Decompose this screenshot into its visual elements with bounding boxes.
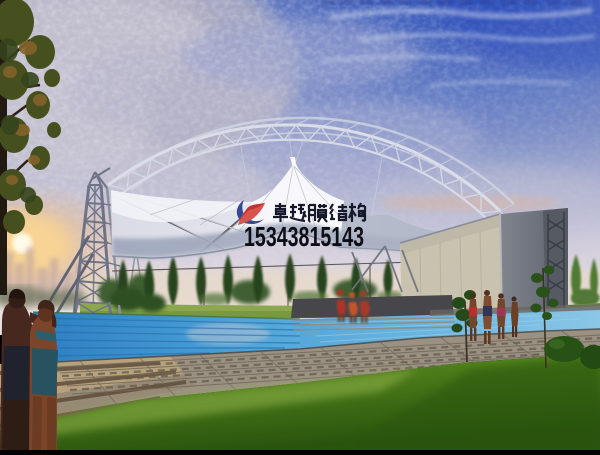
svg-text:15343815143: 15343815143 xyxy=(244,221,364,252)
